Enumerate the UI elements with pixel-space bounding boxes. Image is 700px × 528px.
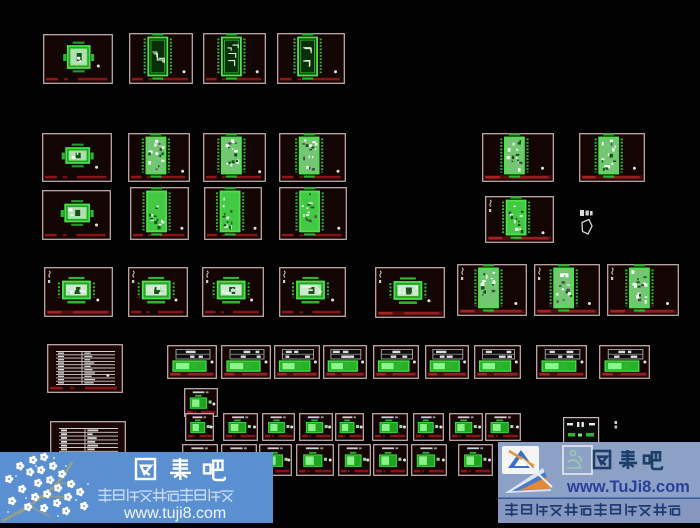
svg-text:www.tuji8.com: www.tuji8.com	[123, 505, 226, 522]
svg-text:www.TuJi8.com: www.TuJi8.com	[566, 478, 690, 496]
